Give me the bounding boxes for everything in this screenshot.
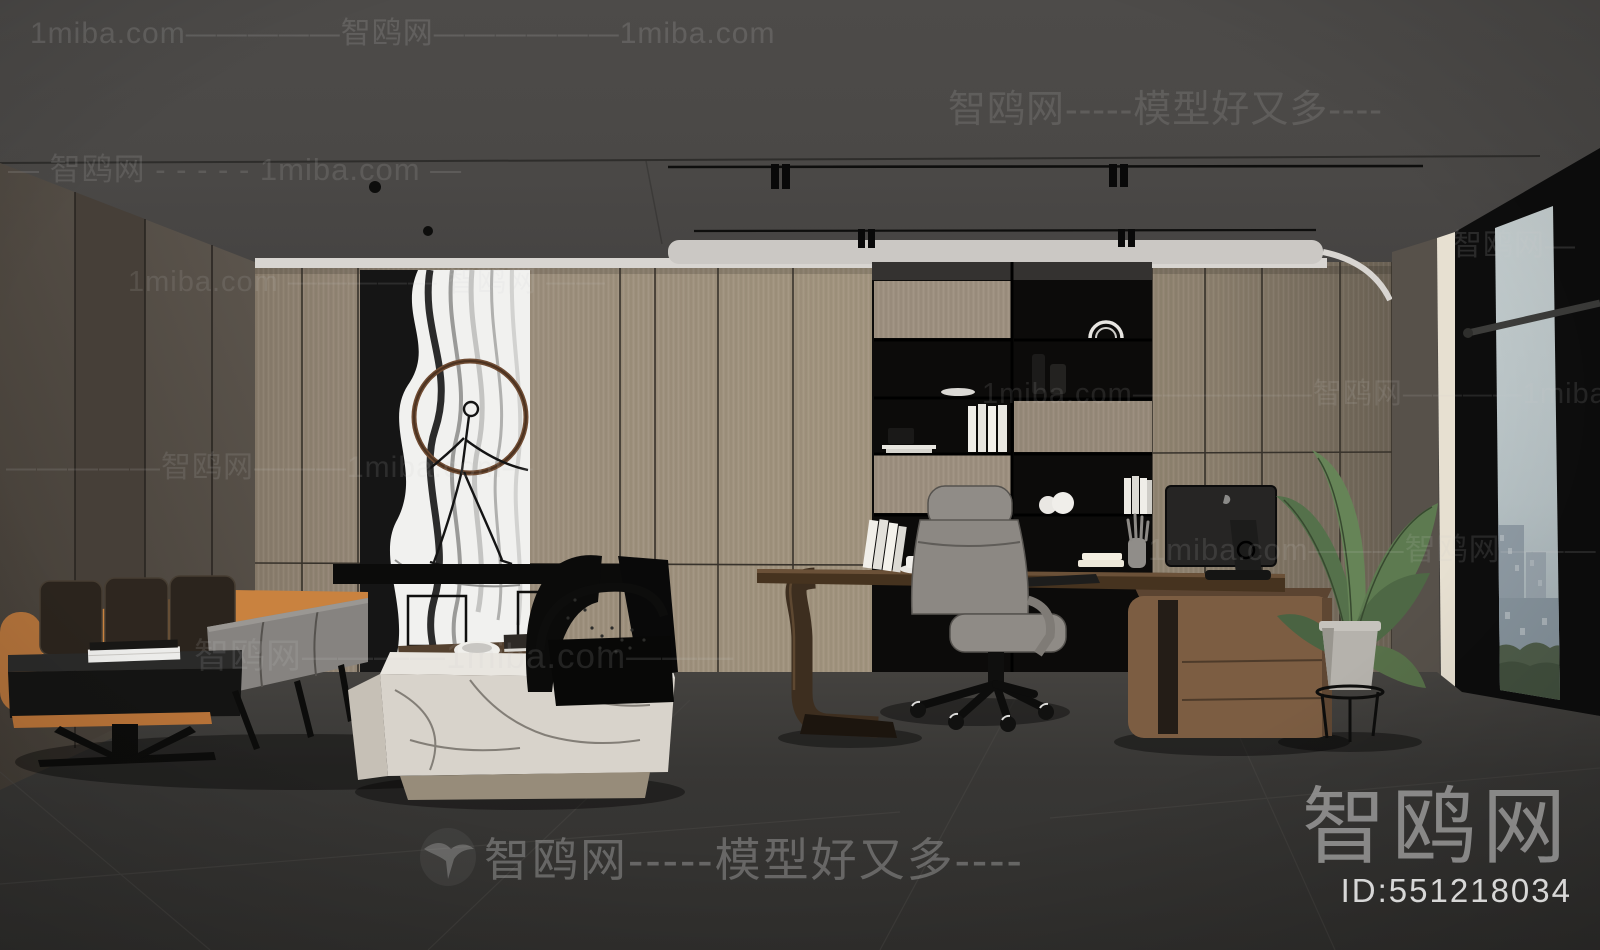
office-3d-render [0, 0, 1600, 950]
vignette-overlay [0, 0, 1600, 950]
office-render-image: 1miba.com—————智鸥网——————1miba.com 智鸥网----… [0, 0, 1600, 950]
